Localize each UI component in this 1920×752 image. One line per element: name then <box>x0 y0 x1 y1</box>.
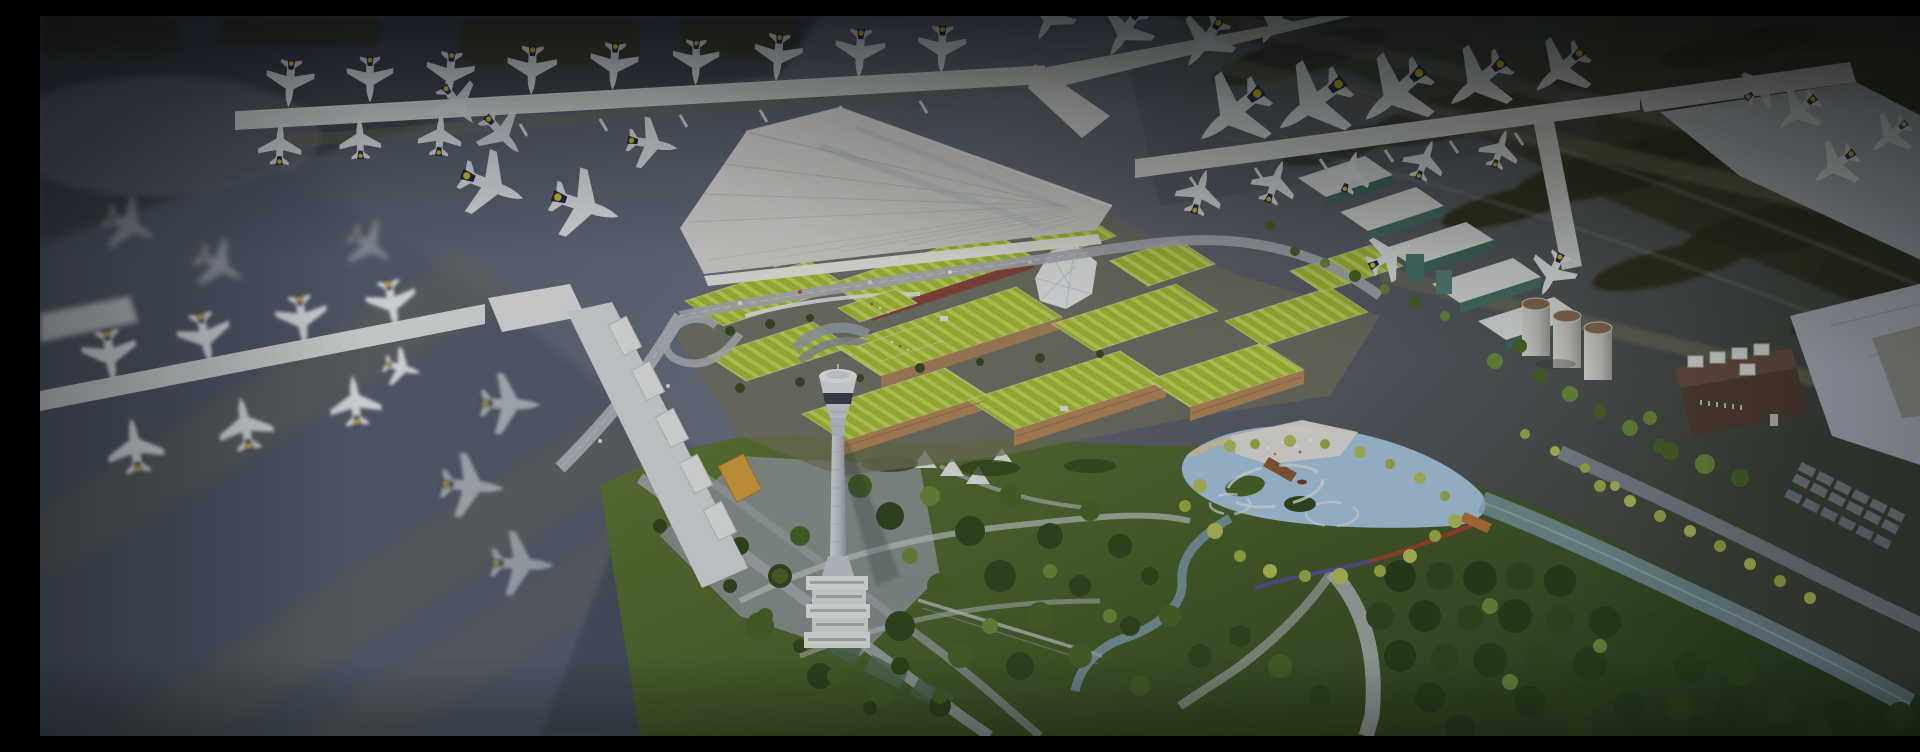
glass-tower <box>1406 254 1424 280</box>
silo <box>1584 322 1612 380</box>
airport-aerial-rendering: Aerial dusk rendering of an airport mast… <box>40 16 1920 736</box>
rendering-scene <box>40 16 1920 736</box>
tower-base-building <box>804 576 870 648</box>
glass-tower <box>1436 270 1452 294</box>
boat <box>1297 480 1307 485</box>
lake-island <box>1284 496 1316 512</box>
